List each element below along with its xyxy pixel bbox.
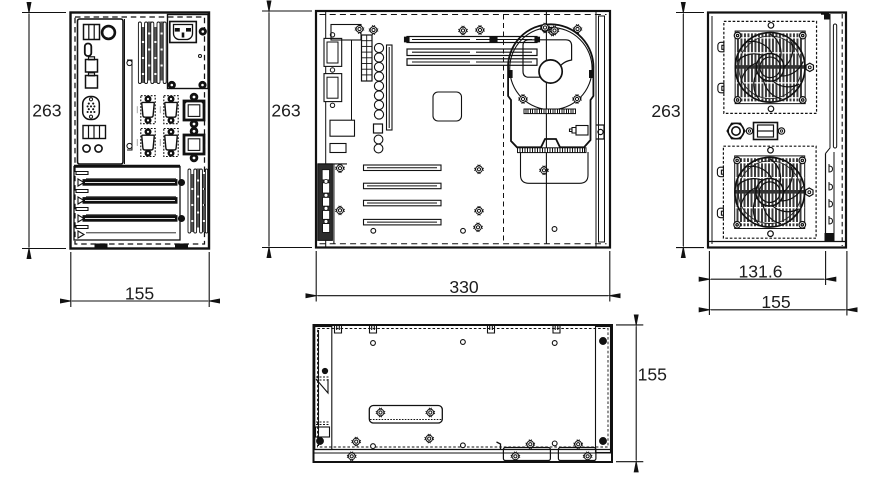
svg-text:263: 263 xyxy=(651,101,681,121)
svg-text:131.6: 131.6 xyxy=(738,261,782,281)
svg-text:155: 155 xyxy=(761,292,791,312)
svg-text:263: 263 xyxy=(32,100,62,120)
svg-text:330: 330 xyxy=(449,277,479,297)
svg-text:155: 155 xyxy=(125,283,155,303)
svg-text:263: 263 xyxy=(271,100,301,120)
svg-text:155: 155 xyxy=(638,365,668,385)
